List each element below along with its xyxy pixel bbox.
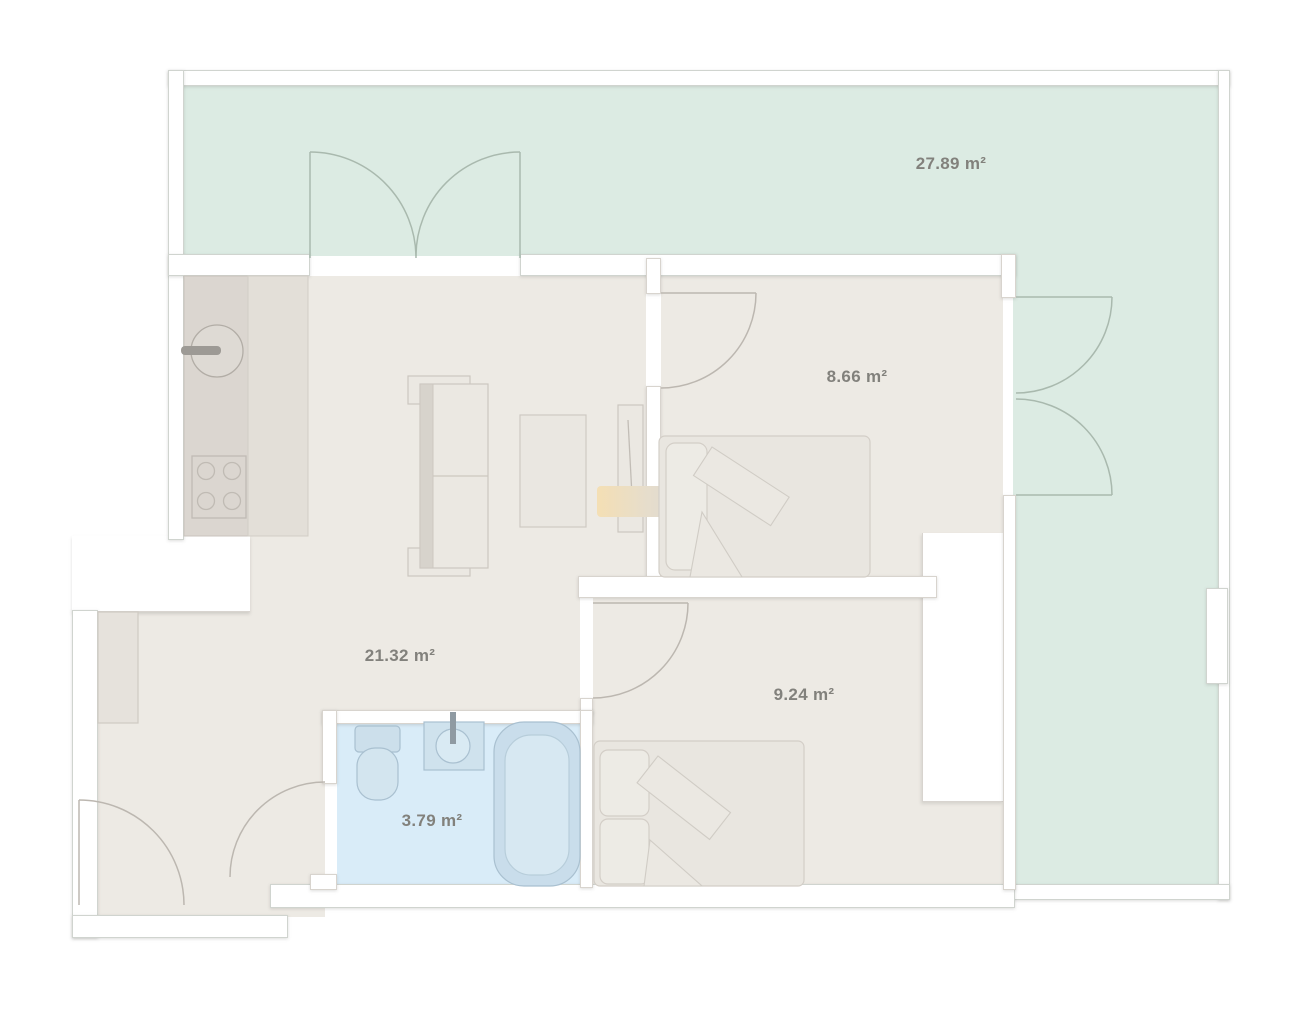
terrace-french-door-icon[interactable]	[310, 152, 520, 258]
living-area-label: 21.32 m²	[365, 646, 435, 666]
coffee-table-icon[interactable]	[520, 415, 586, 527]
entry-door-icon[interactable]	[79, 800, 184, 905]
bedroom-2-bed[interactable]	[594, 741, 804, 886]
kitchen-panel[interactable]	[248, 276, 308, 536]
kitchen-block[interactable]	[181, 276, 308, 536]
bedroom2-area-label: 9.24 m²	[774, 685, 835, 705]
bedroom-1-bed[interactable]	[659, 436, 870, 577]
terrace-area-label: 27.89 m²	[916, 154, 986, 174]
bathroom-fixtures[interactable]	[355, 712, 580, 886]
kitchen-faucet-icon	[181, 346, 221, 355]
sofa-backrest	[420, 384, 433, 568]
basin-faucet-icon	[450, 712, 456, 744]
hallway-closet-icon[interactable]	[98, 612, 138, 723]
kitchen-counter[interactable]	[184, 276, 248, 536]
bedroom2-door-icon[interactable]	[593, 603, 688, 698]
floor-plan-canvas: 27.89 m² 8.66 m² 21.32 m² 9.24 m² 3.79 m…	[0, 0, 1300, 1030]
bedroom1-door-icon[interactable]	[661, 293, 756, 388]
bedroom1-terrace-double-door-icon[interactable]	[1016, 297, 1112, 495]
bedroom1-area-label: 8.66 m²	[827, 367, 888, 387]
bed-pillow	[600, 819, 649, 884]
bathtub-inner	[505, 735, 569, 875]
furniture-layer	[0, 0, 1300, 1030]
bathroom-door-icon[interactable]	[230, 782, 325, 877]
toilet-bowl-icon[interactable]	[357, 748, 398, 800]
bathroom-area-label: 3.79 m²	[402, 811, 463, 831]
